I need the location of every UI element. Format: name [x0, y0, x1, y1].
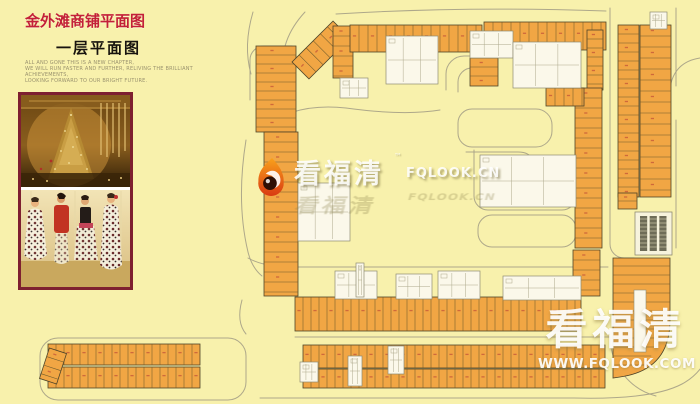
- watermark-center: 看福清 ™ FQLOOK.CN 看福清 FQLOOK.CN: [256, 144, 496, 220]
- watermark-domain: FQLOOK.CN: [406, 166, 500, 181]
- photo-mall-tree: [21, 95, 130, 187]
- tagline-line-3: LOOKING FORWARD TO OUR BRIGHT FUTURE.: [25, 78, 215, 84]
- photo-fashion-models: [21, 190, 130, 287]
- watermark-bottom-right: 看福清 WWW.FQLOOK.COM: [538, 306, 694, 372]
- fqlook-flame-icon: [256, 158, 286, 200]
- watermark-tm: ™: [394, 152, 402, 161]
- watermark-br-brand: 看福清: [538, 306, 694, 354]
- photo-collage-art: [21, 95, 130, 287]
- watermark-brand-reflection: 看福清: [292, 190, 381, 218]
- tagline: ALL AND GONE THIS IS A NEW CHAPTER, WE W…: [25, 60, 215, 84]
- watermark-domain-reflection: FQLOOK.CN: [406, 191, 497, 202]
- watermark-br-domain: WWW.FQLOOK.COM: [538, 356, 694, 372]
- watermark-brand: 看福清: [294, 152, 384, 191]
- photo-collage: [18, 92, 133, 290]
- tagline-line-2: WE WILL RUN FASTER AND FURTHER, RELIVING…: [25, 66, 215, 78]
- poster: 金外滩商铺平面图 一层平面图 ALL AND GONE THIS IS A NE…: [0, 0, 700, 404]
- poster-title: 金外滩商铺平面图: [25, 10, 145, 31]
- poster-subtitle: 一层平面图: [56, 37, 141, 58]
